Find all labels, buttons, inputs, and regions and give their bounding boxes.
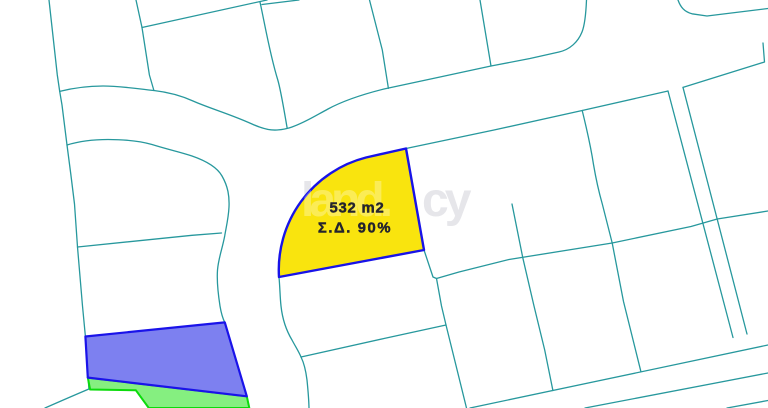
svg-text:cy: cy xyxy=(422,174,472,227)
svg-text:Σ.Δ. 90%: Σ.Δ. 90% xyxy=(318,221,392,237)
svg-text:532 m2: 532 m2 xyxy=(330,201,385,217)
